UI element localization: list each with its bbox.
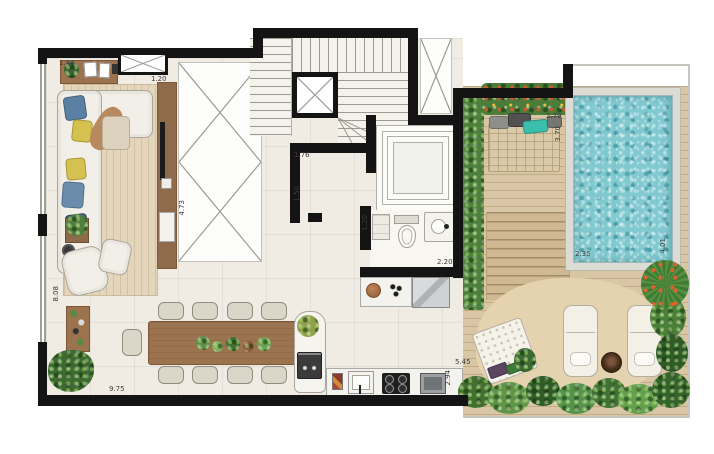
island-plant xyxy=(297,315,319,337)
sofa-cushion-blue xyxy=(62,95,87,122)
daybed-pillow-gray xyxy=(547,116,562,128)
lounger-pillow xyxy=(634,352,655,366)
faucet xyxy=(444,224,449,229)
centerpiece-plant xyxy=(257,337,271,351)
wall-segment xyxy=(38,214,47,236)
tv-screen xyxy=(160,122,165,180)
centerpiece-plant xyxy=(243,341,254,352)
stair-void xyxy=(292,72,338,118)
stair-run-top xyxy=(292,38,408,72)
daybed-pillow-gray xyxy=(489,116,509,129)
pool-water xyxy=(573,95,673,263)
dining-chair xyxy=(192,302,218,320)
bush xyxy=(488,382,530,414)
terrace-boundary-right xyxy=(688,64,690,418)
floor-plan-canvas: 1.441.204.738.081.761.501.202.202.793.70… xyxy=(0,0,714,454)
wall-segment xyxy=(38,342,47,406)
oven xyxy=(420,373,446,394)
coffee-table xyxy=(102,116,130,150)
wall-segment xyxy=(453,88,573,98)
wall-segment xyxy=(453,88,463,278)
toilet-tank xyxy=(394,215,419,224)
hedge-strip xyxy=(463,95,484,310)
shaft-void xyxy=(420,38,452,114)
round-side-table xyxy=(601,352,622,373)
picture-frame xyxy=(83,62,97,78)
sink-faucet xyxy=(359,385,361,394)
palm-plant xyxy=(641,260,689,308)
terrace-boundary-bottom xyxy=(463,416,690,418)
cooktop xyxy=(382,373,410,394)
dining-chair xyxy=(158,366,184,384)
centerpiece-plant xyxy=(226,337,240,351)
sofa-cushion-yellow xyxy=(65,157,87,181)
dining-chair xyxy=(158,302,184,320)
wall-segment xyxy=(308,213,322,222)
burner xyxy=(398,375,407,384)
dining-chair xyxy=(261,366,287,384)
lounger-backrest-line xyxy=(566,332,595,333)
dining-chair xyxy=(261,302,287,320)
bathroom-cabinet xyxy=(372,214,390,240)
dining-table xyxy=(148,321,300,365)
wall-segment xyxy=(360,206,371,250)
wall-segment xyxy=(38,48,47,64)
centerpiece-plant xyxy=(212,341,223,352)
wall-segment xyxy=(290,143,300,223)
kitchen-sink xyxy=(348,371,374,394)
burner xyxy=(385,375,394,384)
daybed-pillow-teal xyxy=(522,119,548,135)
wall-segment xyxy=(408,28,418,125)
wall-segment xyxy=(360,267,463,277)
grill-appliance xyxy=(412,277,450,308)
elevator-shaft xyxy=(376,125,460,211)
media-cabinet xyxy=(159,212,175,242)
picture-frame xyxy=(99,63,111,79)
bookshelf xyxy=(66,306,90,352)
indoor-plant xyxy=(66,214,88,236)
coffee-machine xyxy=(297,352,322,379)
lounger-pillow xyxy=(570,352,591,366)
skylight-opening xyxy=(118,52,168,75)
dining-chair xyxy=(192,366,218,384)
sofa-cushion-blue xyxy=(61,181,85,208)
dining-chair xyxy=(122,329,142,356)
burner xyxy=(385,384,394,393)
kitchen-decor-flowers xyxy=(388,282,404,298)
bush xyxy=(656,334,688,372)
wall-segment xyxy=(253,28,418,38)
wall-segment xyxy=(38,395,468,406)
wall-segment xyxy=(563,64,573,92)
bush xyxy=(526,376,560,406)
shrub xyxy=(514,348,536,372)
sun-lounger xyxy=(563,305,598,377)
bush xyxy=(556,383,596,414)
kitchen-bowl xyxy=(366,283,381,298)
wall-segment xyxy=(290,143,372,153)
dining-chair xyxy=(227,302,253,320)
cutting-board xyxy=(332,373,343,390)
media-speaker xyxy=(161,178,172,189)
terrace-boundary-top xyxy=(573,64,690,66)
bush xyxy=(652,372,690,408)
burner xyxy=(398,384,407,393)
wall-segment xyxy=(366,115,376,173)
dining-chair xyxy=(227,366,253,384)
centerpiece-plant xyxy=(196,336,210,350)
sideboard-plant xyxy=(64,62,79,78)
elevator-car xyxy=(393,142,443,194)
